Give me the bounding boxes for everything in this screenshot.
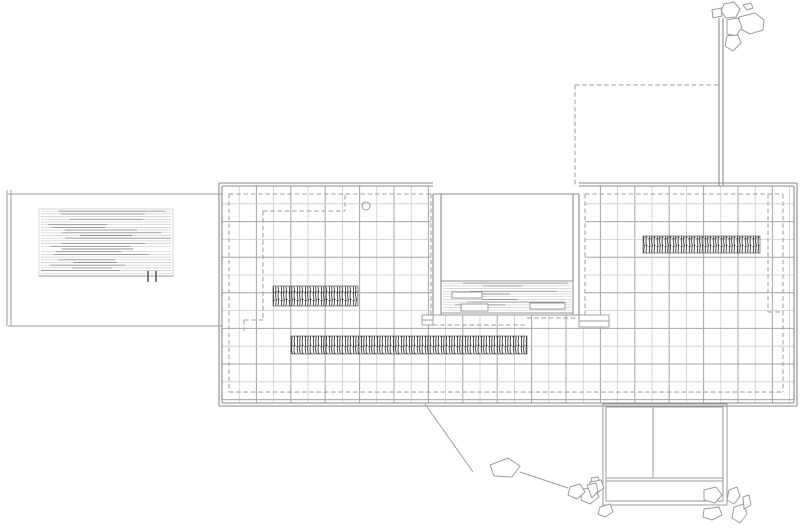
marble-walls <box>273 236 760 354</box>
left-terrace-pool <box>7 190 222 326</box>
freestanding-wall <box>719 18 723 186</box>
drain-circle <box>362 202 370 210</box>
site-plan-stage <box>0 0 800 530</box>
plan-svg <box>0 0 800 530</box>
courtyard-pool <box>422 194 609 327</box>
